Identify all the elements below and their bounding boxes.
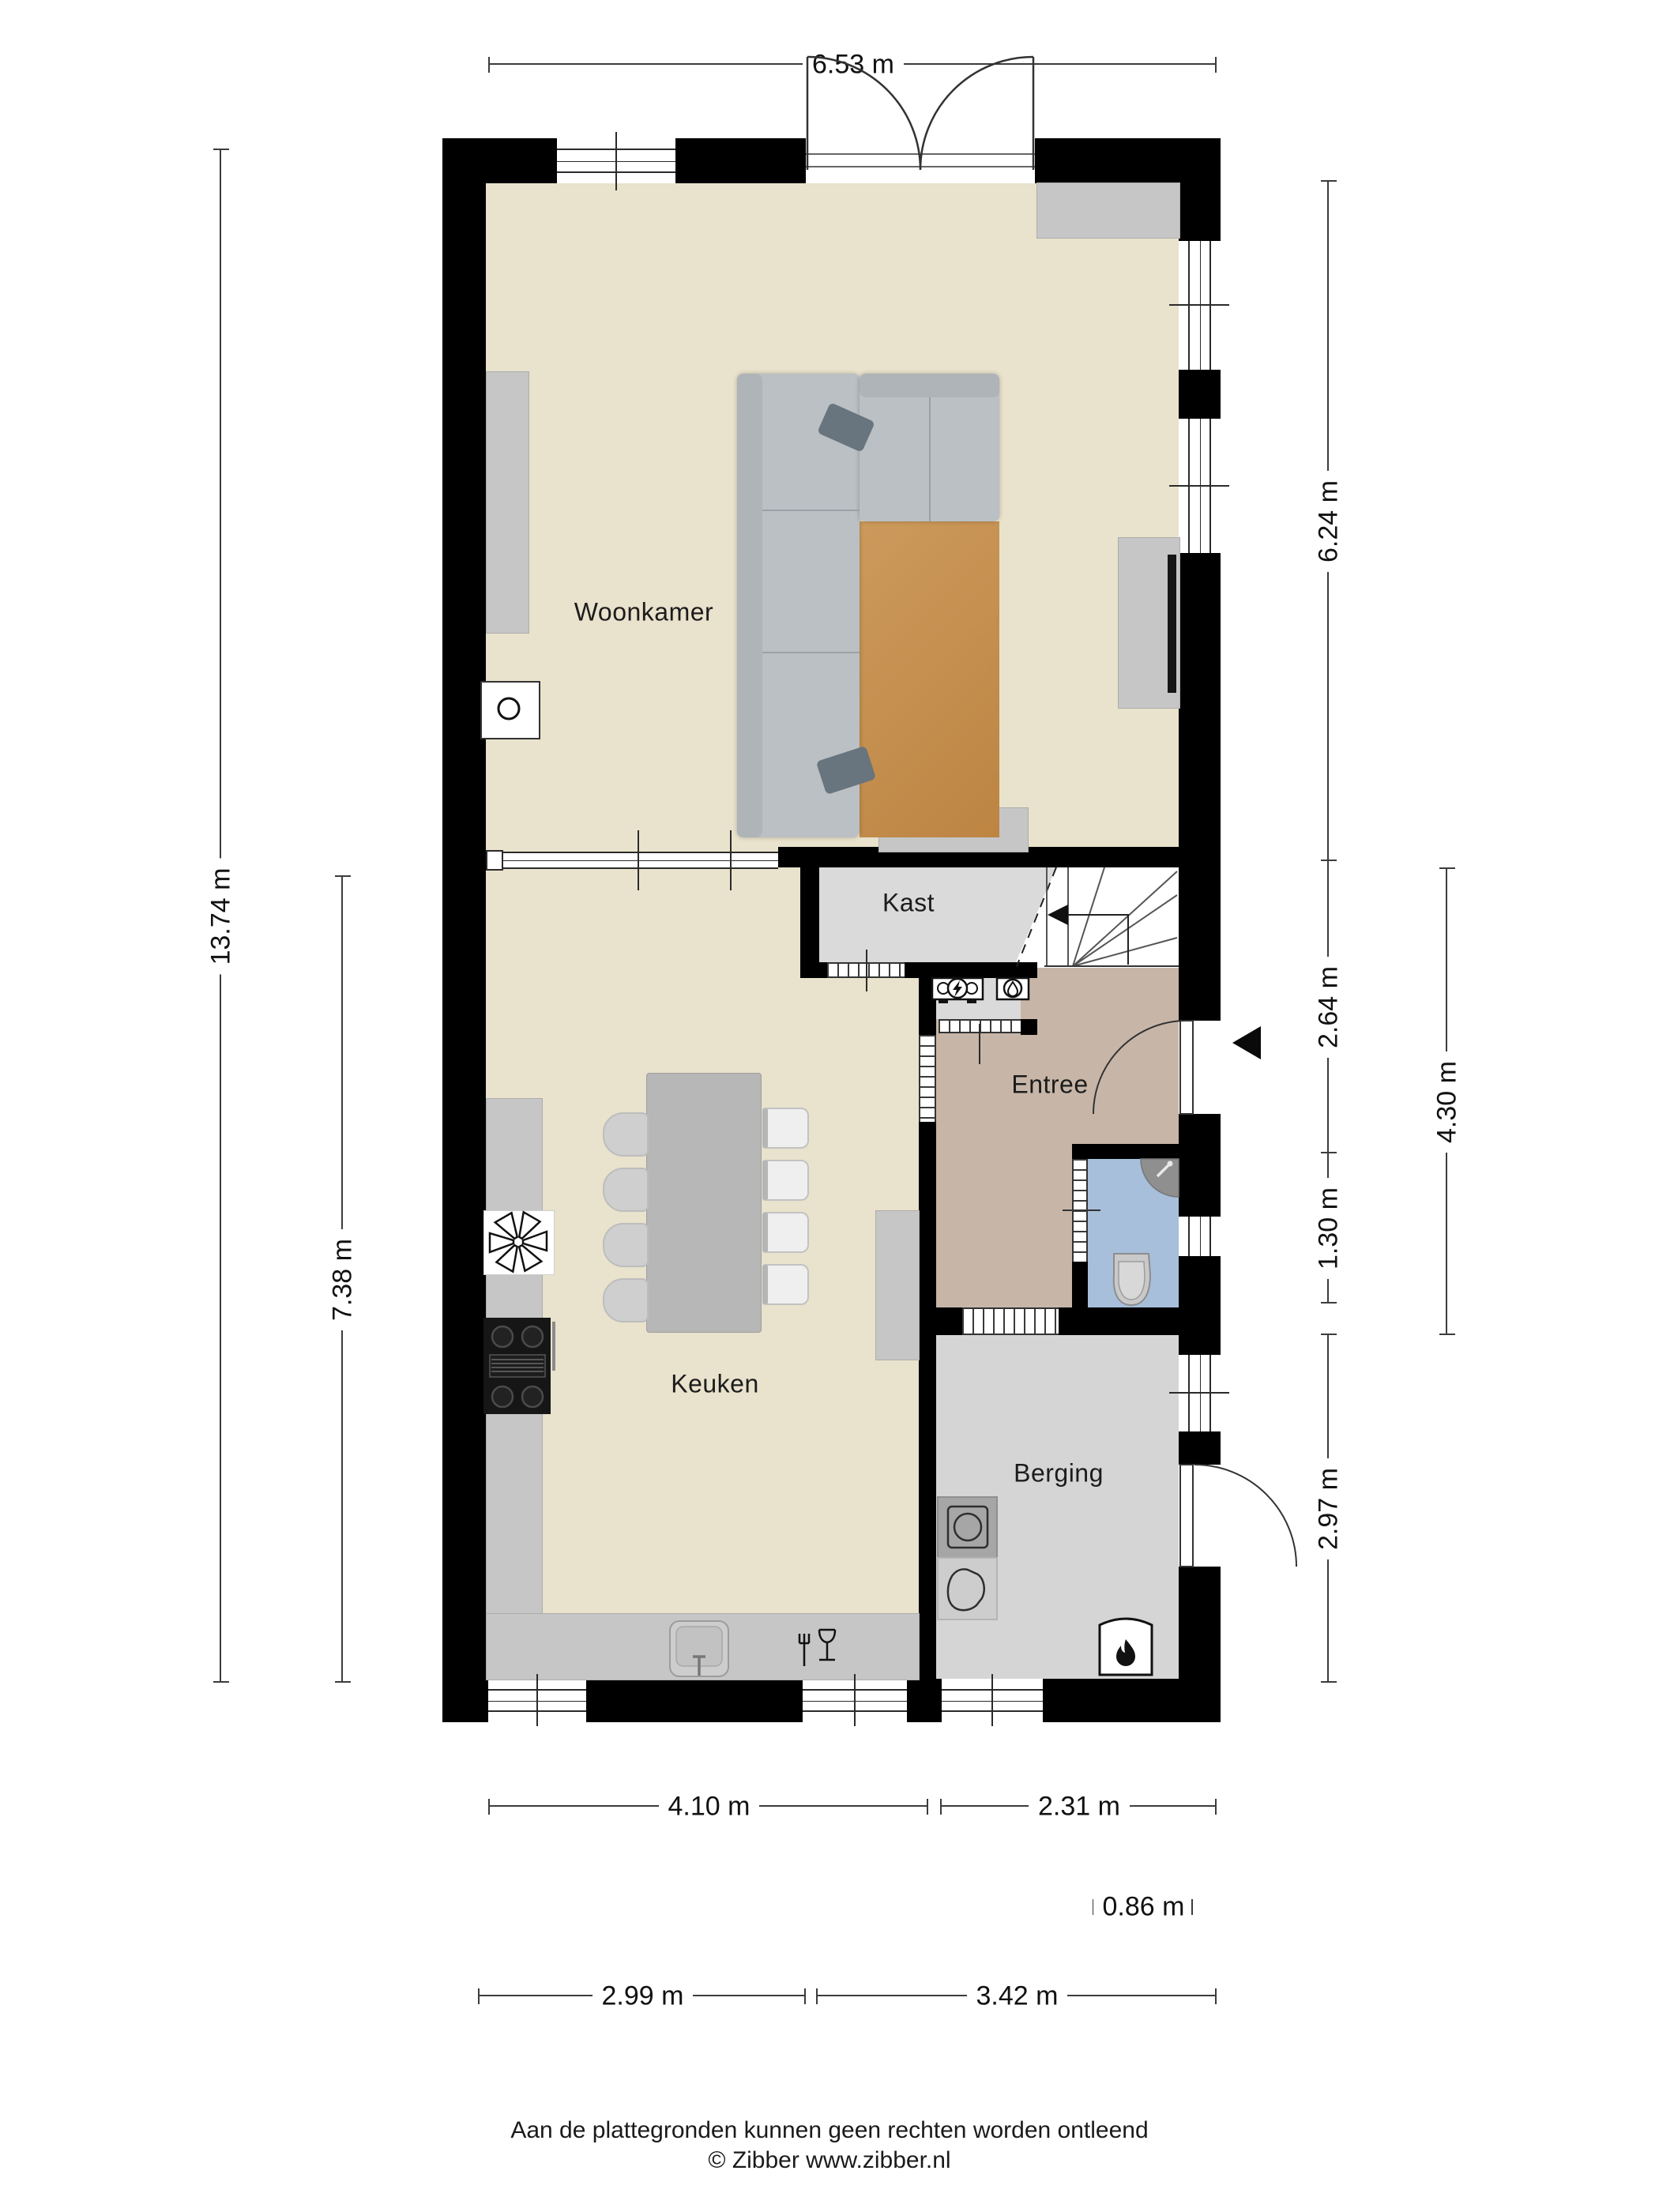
wall-right [1179,138,1221,241]
entrance-arrow-icon [1232,1026,1261,1059]
window-top [557,138,675,183]
dining-chair [762,1212,809,1253]
dim-left-total: 13.74 m [220,150,221,1683]
room-kast-floor [819,867,1056,962]
window-berging [1179,1355,1221,1431]
dining-chair [603,1223,649,1267]
wall-kast-bottom [800,962,827,978]
room-label-entree: Entree [1011,1070,1088,1100]
wall-right [1179,1114,1221,1217]
stove-unit [480,681,540,739]
room-label-keuken: Keuken [671,1370,759,1399]
door-toilet [1072,1159,1088,1262]
meter-cupboard-floor [936,978,1021,1019]
window-bottom-berging [942,1679,1043,1722]
dim-label: 2.97 m [1312,1458,1346,1559]
berging-door-opening [1179,1465,1221,1567]
dim-label: 2.99 m [592,1980,694,2014]
dim-bottom-left-section: 2.99 m [480,1995,806,1996]
dim-label: 4.10 m [659,1790,760,1824]
window-right-living-2 [1179,419,1221,553]
window-bottom-kitchen-2 [803,1679,907,1722]
dim-label: 13.74 m [205,859,239,975]
front-door-opening [1179,1021,1221,1114]
french-door-opening [806,138,1035,183]
dining-chair [603,1112,649,1157]
dim-bottom-berging: 2.31 m [942,1805,1217,1807]
window-bottom-kitchen-1 [488,1679,586,1722]
sofa-cushion-line [762,510,860,511]
door-kitchen-entree [919,1035,936,1122]
door-kast [827,962,905,978]
sofa-chaise-backrest [860,374,999,397]
dim-right-hall-total: 4.30 m [1446,869,1447,1335]
dim-label: 6.24 m [1312,471,1346,572]
sideboard-top-right [1036,182,1180,239]
sofa-cushion-line [762,652,860,653]
wall-kitchen-entree [919,1122,936,1679]
dim-bottom-right-section: 3.42 m [818,1995,1217,1996]
footer: Aan de plattegronden kunnen geen rechten… [0,2117,1659,2174]
wall-right [1179,370,1221,419]
kitchen-counter-left [486,1098,543,1680]
room-label-berging: Berging [1014,1459,1104,1488]
wall-toilet-top [1072,1144,1179,1159]
dim-top-width: 6.53 m [490,63,1217,65]
dim-right-livingroom: 6.24 m [1327,182,1329,861]
dim-right-toilet: 1.30 m [1327,1153,1329,1303]
disclaimer-text: Aan de plattegronden kunnen geen rechten… [0,2117,1659,2144]
dim-left-kitchen: 7.38 m [341,877,343,1683]
wall-bottom [907,1679,942,1722]
dining-table [646,1073,762,1333]
window-toilet [1179,1217,1221,1256]
wall-meter-cupboard-right [1021,1019,1037,1035]
rug [860,521,999,837]
floorplan-page: 6.53 m 13.74 m 7.38 m 6.24 m 2.64 m 1.30… [0,0,1659,2212]
dim-bottom-door: 0.86 m [1094,1905,1193,1907]
dim-right-entree: 2.64 m [1327,861,1329,1153]
dim-label: 2.31 m [1029,1790,1130,1824]
dim-label: 1.30 m [1312,1178,1346,1279]
kitchen-counter-right [875,1210,920,1360]
kitchen-counter-bottom [486,1613,920,1680]
glass-partition-living-kitchen [486,852,778,869]
dim-label: 4.30 m [1431,1051,1465,1153]
dining-chair [603,1278,649,1322]
wall-top [442,138,557,183]
sofa-cushion-line [929,397,931,521]
ventilation-box [483,1210,555,1275]
wall-right [1179,1431,1221,1465]
door-entree-berging [962,1307,1059,1335]
floor-plan: Woonkamer Kast Entree Keuken Berging [442,138,1221,1722]
sofa-backrest [737,374,762,837]
window-right-living-1 [1179,241,1221,370]
wall-right [1179,1256,1221,1355]
dim-label: 2.64 m [1312,957,1346,1058]
wall-kast-left [800,852,819,978]
dim-label: 3.42 m [967,1980,1068,2014]
dim-label: 7.38 m [326,1229,360,1330]
room-label-kast: Kast [882,889,935,918]
room-toilet-floor [1088,1159,1179,1307]
dim-label: 0.86 m [1093,1890,1194,1924]
room-berging-floor [936,1335,1179,1679]
dining-chair [762,1264,809,1305]
tv [1168,555,1176,693]
wall-meter-cupboard-left [919,968,936,1035]
sideboard-left [486,371,529,634]
door-meter-cupboard [939,1019,1021,1033]
dim-right-berging: 2.97 m [1327,1335,1329,1683]
dining-chair [762,1108,809,1149]
wall-right [1179,553,1221,1021]
wall-bottom [442,1679,488,1722]
wall-left [442,138,486,1722]
wall-bottom [586,1679,803,1722]
room-label-woonkamer: Woonkamer [574,598,713,627]
dining-chair [603,1168,649,1212]
dining-chair [762,1160,809,1201]
dim-label: 6.53 m [803,48,904,82]
dim-bottom-kitchen: 4.10 m [490,1805,928,1807]
wall-top [675,138,806,183]
copyright-text: © Zibber www.zibber.nl [0,2147,1659,2174]
wall-bottom [1043,1679,1221,1722]
glass-partition-post [486,850,503,871]
